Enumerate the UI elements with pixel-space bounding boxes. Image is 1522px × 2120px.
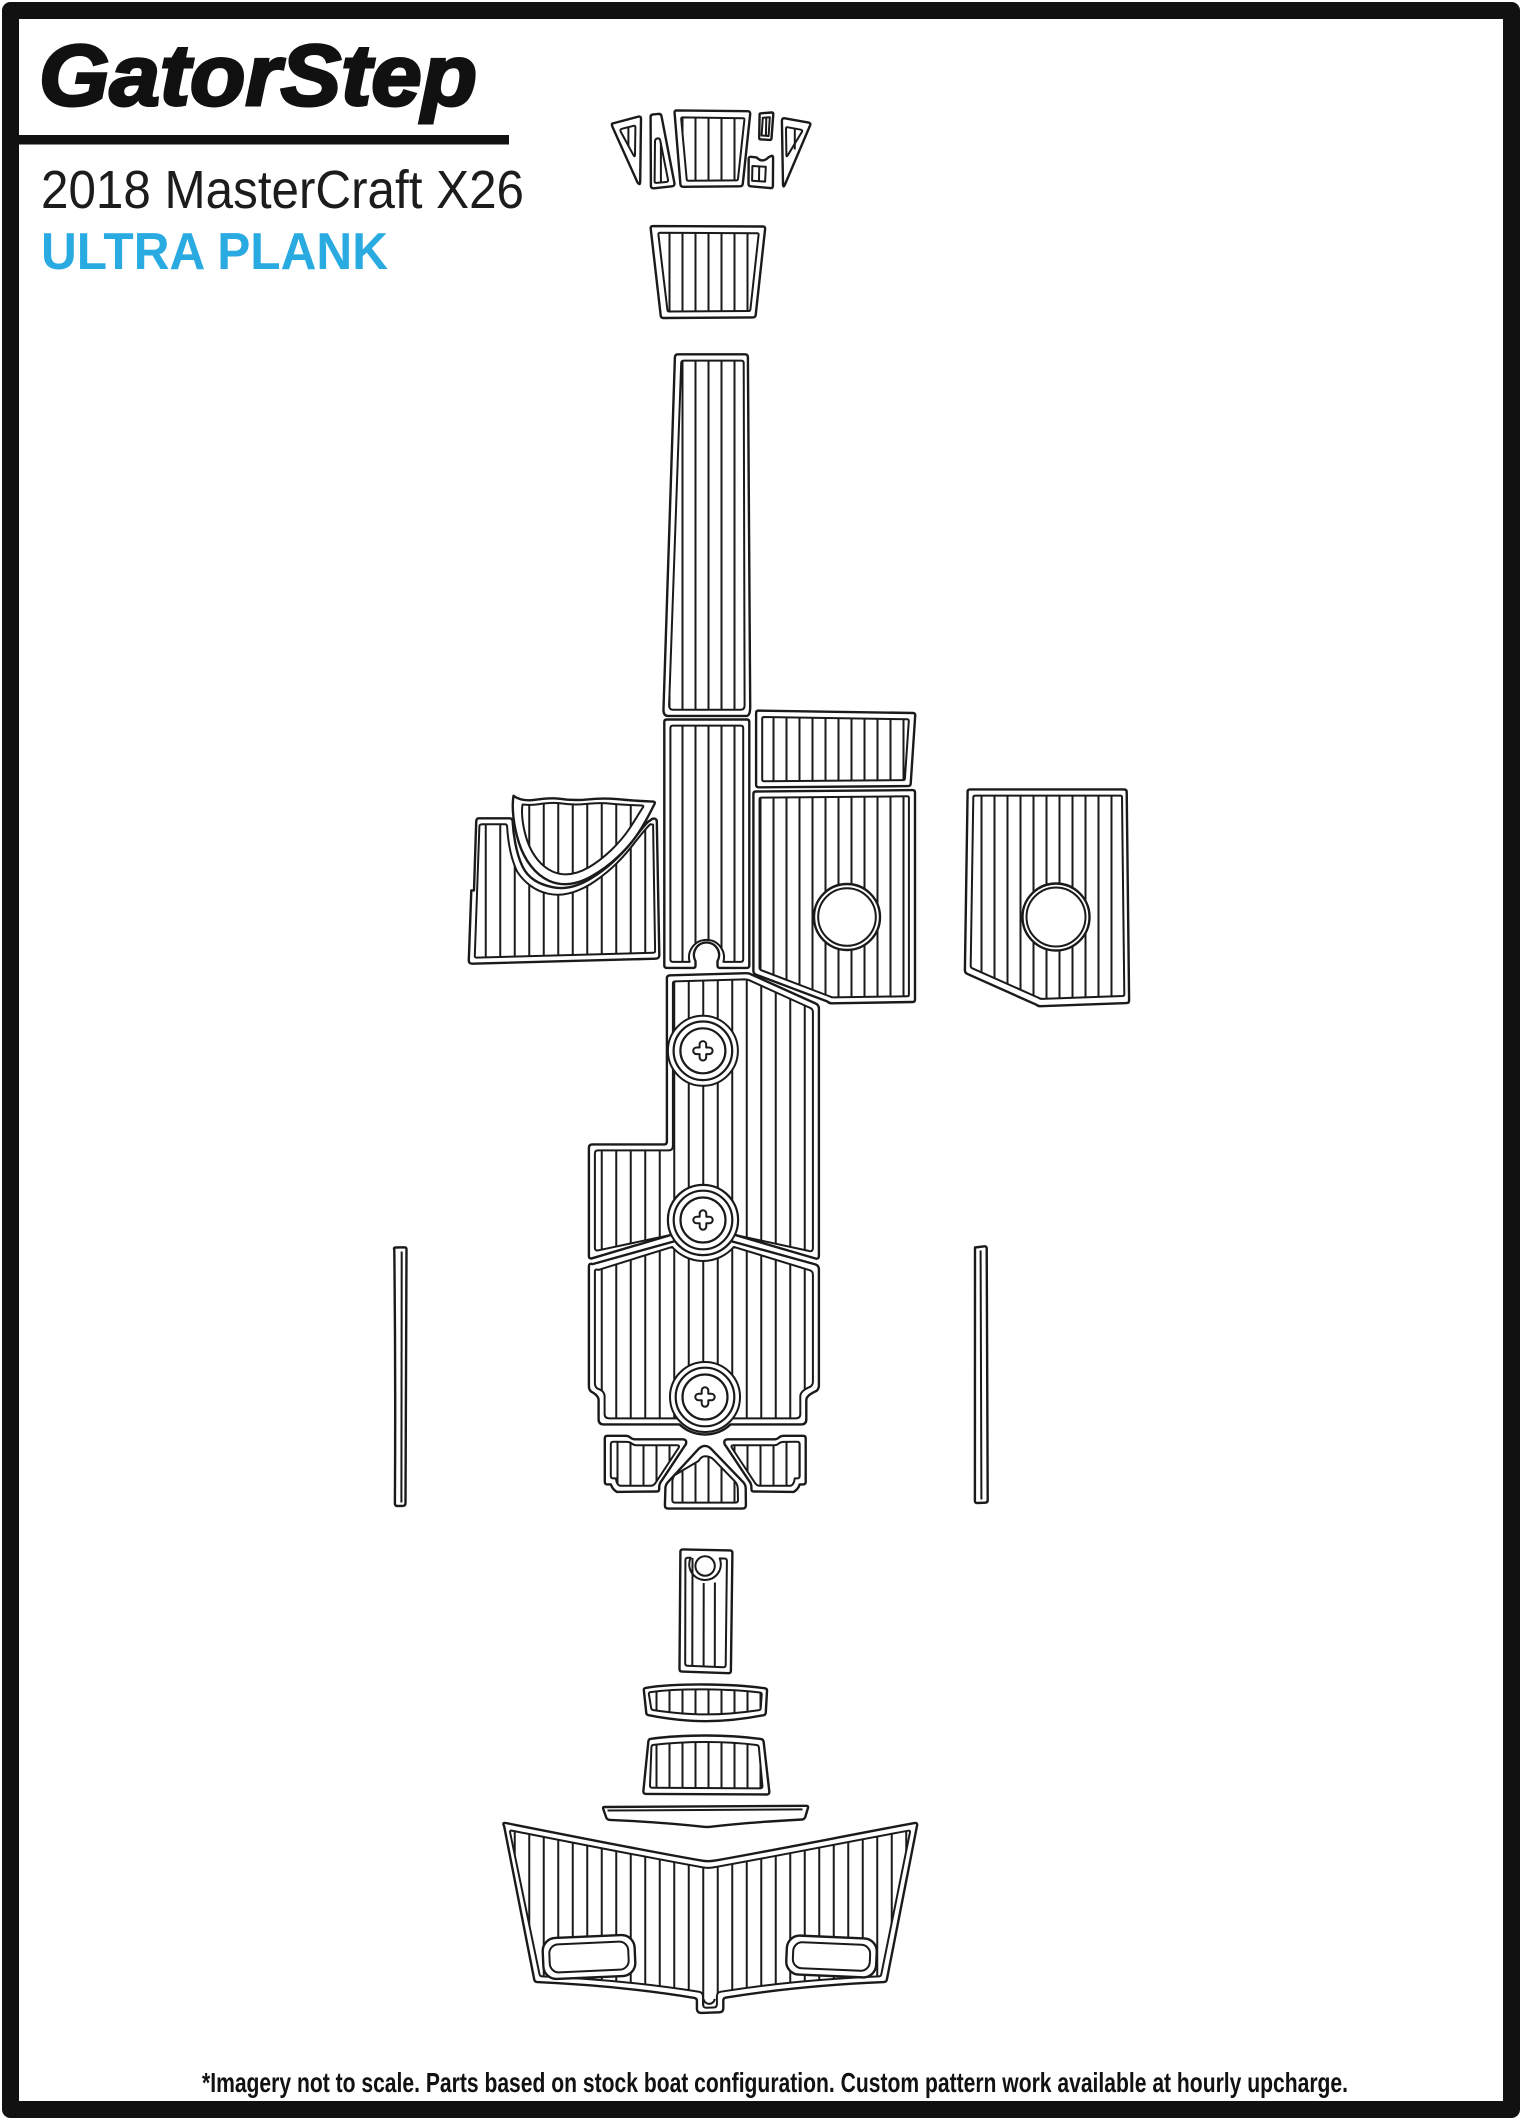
svg-text:*Imagery not to scale. Parts b: *Imagery not to scale. Parts based on st… [202,2067,1348,2098]
svg-text:GatorStep: GatorStep [39,28,477,124]
svg-text:ULTRA PLANK: ULTRA PLANK [41,223,388,281]
svg-text:2018 MasterCraft X26: 2018 MasterCraft X26 [41,160,524,220]
